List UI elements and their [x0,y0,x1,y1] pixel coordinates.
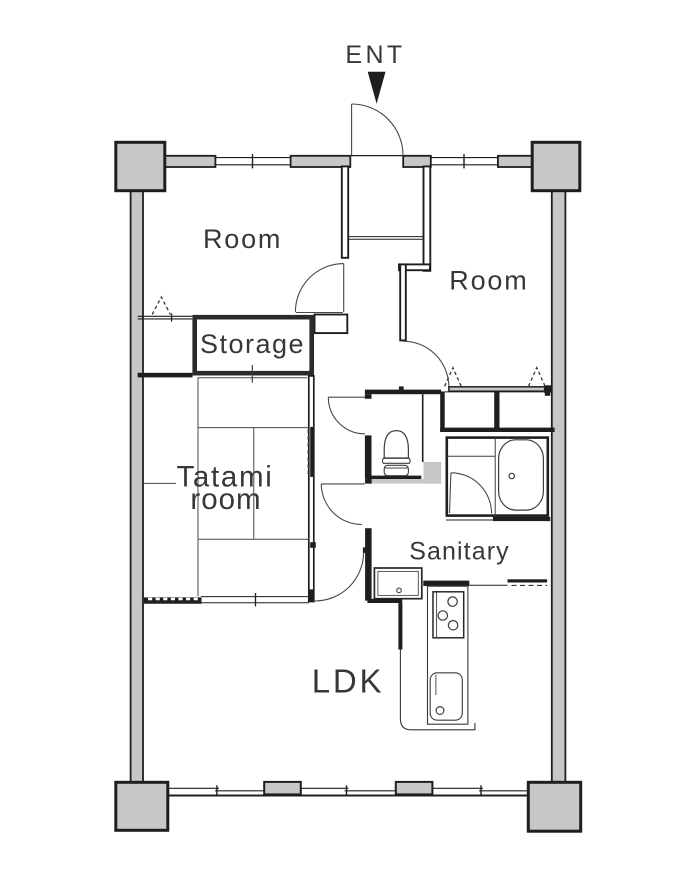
svg-text:room: room [190,483,261,516]
svg-text:Room: Room [203,224,282,254]
svg-text:Room: Room [449,265,528,295]
svg-text:ENT: ENT [345,41,405,69]
svg-text:Storage: Storage [200,329,305,359]
svg-text:Sanitary: Sanitary [409,538,510,566]
svg-text:LDK: LDK [312,663,385,700]
